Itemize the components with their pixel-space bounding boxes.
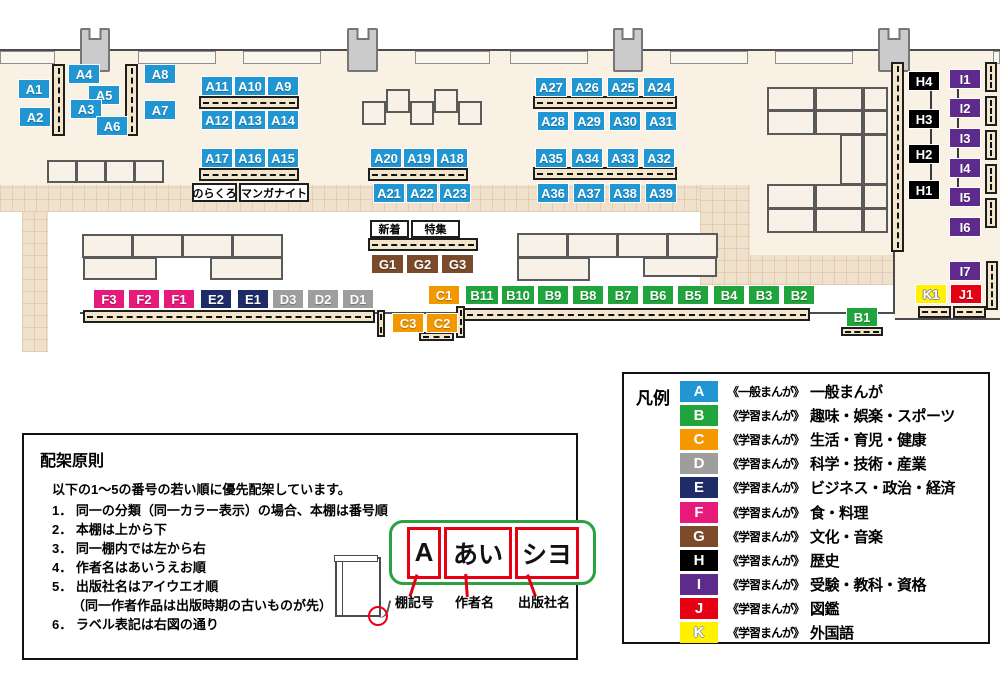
legend-item-G: G《学習まんが》文化・音楽 [680, 524, 984, 548]
bookshelf [918, 306, 951, 318]
legend-item-E: E《学習まんが》ビジネス・政治・経済 [680, 476, 984, 500]
shelf-label-A35: A35 [535, 148, 567, 168]
legend-item-F: F《学習まんが》食・料理 [680, 500, 984, 524]
annotation-tokushu: 特集 [411, 220, 460, 238]
shelf-label-A13: A13 [234, 110, 266, 130]
shelf-label-B6: B6 [642, 285, 674, 305]
wall-counter [670, 51, 748, 64]
bookshelf [533, 167, 677, 180]
label-part-0: A [407, 527, 441, 579]
shelf-label-I5: I5 [949, 187, 981, 207]
wall-counter [243, 51, 321, 64]
shelf-label-A8: A8 [144, 64, 176, 84]
legend-label: 外国語 [810, 622, 854, 643]
shelf-label-B5: B5 [677, 285, 709, 305]
table [815, 87, 863, 111]
table [815, 184, 863, 209]
bookshelf [52, 64, 65, 136]
bookshelf [891, 62, 904, 252]
legend-color-chip-F: F [680, 502, 718, 523]
legend-item-C: C《学習まんが》生活・育児・健康 [680, 427, 984, 451]
legend-label: 趣味・娯楽・スポーツ [810, 405, 955, 426]
legend-item-B: B《学習まんが》趣味・娯楽・スポーツ [680, 403, 984, 427]
legend-color-chip-G: G [680, 526, 718, 547]
shelf-label-F3: F3 [93, 289, 125, 309]
shelf-label-D3: D3 [272, 289, 304, 309]
table [132, 234, 183, 258]
bookshelf [985, 96, 997, 126]
shelf-label-A2: A2 [19, 107, 51, 127]
bookshelf [985, 198, 997, 228]
legend-label: 生活・育児・健康 [810, 429, 926, 450]
shelf-label-A39: A39 [645, 183, 677, 203]
table [362, 101, 386, 125]
wall-counter [138, 51, 216, 64]
shelf-label-D2: D2 [307, 289, 339, 309]
shelf-label-I7: I7 [949, 261, 981, 281]
legend-type: 《学習まんが》 [727, 576, 804, 593]
shelf-label-H3: H3 [908, 109, 940, 129]
table [617, 233, 668, 258]
diagram-caption-author: 作者名 [455, 592, 494, 611]
table [386, 89, 410, 113]
shelf-label-A18: A18 [436, 148, 468, 168]
table [517, 233, 568, 258]
pillar [347, 28, 378, 72]
shelf-label-A38: A38 [609, 183, 641, 203]
label-part-2: シヨ [515, 527, 579, 579]
principle-item-1: 1． 同一の分類（同一カラー表示）の場合、本棚は番号順 [52, 501, 388, 520]
table [767, 87, 815, 111]
shelf-label-B8: B8 [572, 285, 604, 305]
shelf-label-A15: A15 [267, 148, 299, 168]
table [863, 87, 888, 111]
bookshelf [463, 308, 810, 321]
table [863, 208, 888, 233]
principle-item-2: 2． 本棚は上から下 [52, 520, 388, 539]
table [83, 257, 157, 280]
table [567, 233, 618, 258]
legend-type: 《学習まんが》 [727, 479, 804, 496]
table [767, 208, 815, 233]
legend-item-D: D《学習まんが》科学・技術・産業 [680, 452, 984, 476]
table [232, 234, 283, 258]
legend-rows: A《一般まんが》一般まんがB《学習まんが》趣味・娯楽・スポーツC《学習まんが》生… [680, 379, 984, 645]
bookshelf [368, 168, 468, 181]
table [76, 160, 106, 183]
pillar-notch [89, 28, 102, 40]
shelf-label-A9: A9 [267, 76, 299, 96]
wall-counter [415, 51, 490, 64]
shelf-label-B7: B7 [607, 285, 639, 305]
legend-color-chip-J: J [680, 598, 718, 619]
legend-label: 図鑑 [810, 598, 839, 619]
bookshelf [419, 332, 454, 341]
legend-item-A: A《一般まんが》一般まんが [680, 379, 984, 403]
table [815, 110, 863, 135]
library-floor-map: A1A2A4A5A3A6A8A7A11A10A9A12A13A14A17A16A… [0, 0, 1000, 700]
shelf-label-B3: B3 [748, 285, 780, 305]
legend-item-I: I《学習まんが》受験・教科・資格 [680, 573, 984, 597]
table [517, 257, 590, 281]
legend-label: ビジネス・政治・経済 [810, 477, 955, 498]
legend-item-K: K《学習まんが》外国語 [680, 621, 984, 645]
shelf-label-F2: F2 [128, 289, 160, 309]
shelf-label-A34: A34 [571, 148, 603, 168]
legend-color-chip-D: D [680, 453, 718, 474]
table [105, 160, 135, 183]
label-position-circle [368, 606, 388, 626]
shelf-label-H4: H4 [908, 71, 940, 91]
legend-color-chip-K: K [680, 622, 718, 643]
shelf-label-C1: C1 [428, 285, 460, 305]
shelf-label-I4: I4 [949, 158, 981, 178]
shelf-label-A23: A23 [439, 183, 471, 203]
shelf-label-A11: A11 [201, 76, 233, 96]
shelf-label-I3: I3 [949, 128, 981, 148]
shelf-label-A6: A6 [96, 116, 128, 136]
wall [895, 318, 1000, 320]
book-spine [342, 559, 343, 615]
legend-label: 食・料理 [810, 502, 868, 523]
bookshelf [199, 168, 299, 181]
principles-title: 配架原則 [40, 447, 104, 471]
bookshelf [985, 62, 997, 92]
shelf-label-A30: A30 [609, 111, 641, 131]
legend-color-chip-E: E [680, 477, 718, 498]
pillar-notch [356, 28, 369, 40]
shelf-label-H2: H2 [908, 144, 940, 164]
principles-box: 配架原則 以下の1～5の番号の若い順に優先配架しています。 1． 同一の分類（同… [22, 433, 578, 660]
pillar-notch [888, 28, 901, 40]
shelf-label-G1: G1 [371, 254, 404, 274]
shelf-label-E2: E2 [200, 289, 232, 309]
shelf-label-B4: B4 [713, 285, 745, 305]
shelf-label-A10: A10 [234, 76, 266, 96]
shelf-label-B10: B10 [501, 285, 535, 305]
bookshelf [377, 310, 385, 337]
shelf-label-J1: J1 [950, 284, 982, 304]
legend-type: 《学習まんが》 [727, 455, 804, 472]
shelf-label-K1: K1 [915, 284, 947, 304]
legend-type: 《学習まんが》 [727, 552, 804, 569]
shelf-label-A16: A16 [234, 148, 266, 168]
bookshelf [986, 261, 998, 310]
diagram-caption-shelf: 棚記号 [395, 592, 434, 611]
bookshelf [83, 310, 375, 323]
wall-counter [0, 51, 55, 64]
table [47, 160, 77, 183]
legend-color-chip-B: B [680, 405, 718, 426]
legend-label: 文化・音楽 [810, 526, 883, 547]
shelf-label-A32: A32 [643, 148, 675, 168]
shelf-label-A21: A21 [373, 183, 405, 203]
legend-item-J: J《学習まんが》図鑑 [680, 597, 984, 621]
legend-type: 《学習まんが》 [727, 504, 804, 521]
legend-color-chip-I: I [680, 574, 718, 595]
wall-counter [510, 51, 588, 64]
shelf-label-A7: A7 [144, 100, 176, 120]
shelf-label-A24: A24 [643, 77, 675, 97]
table [667, 233, 718, 258]
table [767, 184, 815, 209]
table [82, 234, 133, 258]
shelf-label-B1: B1 [846, 307, 878, 327]
walkway [22, 212, 48, 352]
table [134, 160, 164, 183]
wall-counter [775, 51, 853, 64]
bookshelf [985, 130, 997, 160]
bookshelf [841, 327, 883, 336]
legend-item-H: H《学習まんが》歴史 [680, 548, 984, 572]
shelf-label-I1: I1 [949, 69, 981, 89]
legend-color-chip-A: A [680, 381, 718, 402]
shelf-label-A28: A28 [537, 111, 569, 131]
walkway [750, 255, 893, 285]
shelf-label-A14: A14 [267, 110, 299, 130]
shelf-label-A4: A4 [68, 64, 100, 84]
legend-type: 《学習まんが》 [727, 407, 804, 424]
table [863, 110, 888, 135]
legend-label: 受験・教科・資格 [810, 574, 926, 595]
shelf-label-E1: E1 [237, 289, 269, 309]
wall [893, 252, 895, 314]
shelf-label-A31: A31 [645, 111, 677, 131]
legend-box: 凡例 A《一般まんが》一般まんがB《学習まんが》趣味・娯楽・スポーツC《学習まん… [622, 372, 990, 644]
shelf-label-A33: A33 [607, 148, 639, 168]
annotation-norakuro: のらくろ [192, 183, 237, 202]
shelf-label-A29: A29 [573, 111, 605, 131]
shelf-label-A27: A27 [535, 77, 567, 97]
table [410, 101, 434, 125]
shelf-label-G3: G3 [441, 254, 474, 274]
principle-item-6: 6． ラベル表記は右図の通り [52, 615, 388, 634]
label-diagram: Aあいシヨ [389, 520, 596, 585]
shelf-label-B9: B9 [537, 285, 569, 305]
table [434, 89, 458, 113]
table [863, 134, 888, 185]
legend-color-chip-C: C [680, 429, 718, 450]
shelf-label-C2: C2 [426, 313, 458, 333]
annotation-manga-night: マンガナイト [239, 183, 309, 202]
bookshelf [533, 96, 677, 109]
diagram-caption-publisher: 出版社名 [518, 592, 570, 611]
legend-label: 一般まんが [810, 381, 883, 402]
shelf-label-A1: A1 [18, 79, 50, 99]
pillar [613, 28, 643, 72]
table [643, 257, 717, 277]
shelf-label-C3: C3 [392, 313, 424, 333]
bookshelf [985, 164, 997, 194]
shelf-label-B11: B11 [465, 285, 499, 305]
book-icon [335, 557, 381, 617]
shelf-label-A17: A17 [201, 148, 233, 168]
shelf-label-A12: A12 [201, 110, 233, 130]
legend-type: 《一般まんが》 [727, 383, 804, 400]
shelf-label-A25: A25 [607, 77, 639, 97]
legend-type: 《学習まんが》 [727, 624, 804, 641]
annotation-shinchaku: 新着 [370, 220, 409, 238]
shelf-label-D1: D1 [342, 289, 374, 309]
shelf-label-I6: I6 [949, 217, 981, 237]
legend-type: 《学習まんが》 [727, 528, 804, 545]
label-part-1: あい [444, 527, 512, 579]
table [182, 234, 233, 258]
shelf-label-B2: B2 [783, 285, 815, 305]
table [815, 208, 863, 233]
shelf-label-F1: F1 [163, 289, 195, 309]
shelf-label-A19: A19 [403, 148, 435, 168]
legend-type: 《学習まんが》 [727, 431, 804, 448]
principles-intro: 以下の1～5の番号の若い順に優先配架しています。 [52, 479, 351, 498]
shelf-label-A20: A20 [370, 148, 402, 168]
table [767, 110, 815, 135]
legend-title: 凡例 [636, 384, 670, 409]
pillar-notch [622, 28, 635, 40]
bookshelf [368, 238, 478, 251]
shelf-label-A36: A36 [537, 183, 569, 203]
legend-type: 《学習まんが》 [727, 600, 804, 617]
shelf-label-H1: H1 [908, 180, 940, 200]
bookshelf [199, 96, 299, 109]
table [458, 101, 482, 125]
legend-label: 歴史 [810, 550, 839, 571]
legend-color-chip-H: H [680, 550, 718, 571]
shelf-label-A37: A37 [573, 183, 605, 203]
table [210, 257, 283, 280]
shelf-label-A26: A26 [571, 77, 603, 97]
legend-label: 科学・技術・産業 [810, 453, 926, 474]
table [840, 134, 863, 185]
shelf-label-A22: A22 [406, 183, 438, 203]
shelf-label-G2: G2 [406, 254, 439, 274]
book-pages [334, 555, 378, 562]
shelf-label-I2: I2 [949, 98, 981, 118]
table [863, 184, 888, 209]
bookshelf [953, 306, 986, 318]
